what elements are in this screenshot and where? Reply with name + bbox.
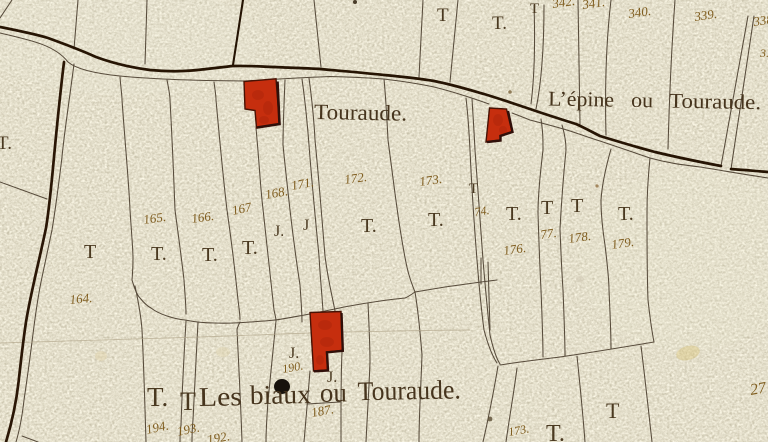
svg-text:Touraude.: Touraude. <box>358 374 462 406</box>
svg-text:T.: T. <box>618 203 634 225</box>
svg-text:T.: T. <box>546 421 565 442</box>
svg-text:J.: J. <box>327 369 337 386</box>
svg-text:166.: 166. <box>190 208 215 226</box>
svg-text:J.: J. <box>274 223 284 240</box>
svg-text:Touraude.: Touraude. <box>314 99 407 126</box>
svg-text:164.: 164. <box>69 290 93 307</box>
svg-text:T.: T. <box>202 244 218 266</box>
svg-text:338: 338 <box>751 11 768 29</box>
svg-text:77.: 77. <box>539 225 557 242</box>
svg-text:165.: 165. <box>142 209 167 227</box>
svg-text:Touraude.: Touraude. <box>669 89 761 115</box>
svg-text:ou: ou <box>631 88 654 112</box>
svg-text:T: T <box>84 241 96 263</box>
svg-text:T: T <box>180 387 196 416</box>
svg-text:J: J <box>303 217 309 234</box>
svg-text:T: T <box>606 398 620 423</box>
svg-text:179.: 179. <box>610 234 635 252</box>
svg-text:T: T <box>437 5 449 26</box>
svg-text:T: T <box>530 1 539 17</box>
svg-text:T.: T. <box>428 209 444 231</box>
svg-text:T.: T. <box>147 382 168 412</box>
svg-text:biaux: biaux <box>250 379 312 410</box>
svg-text:176.: 176. <box>502 240 527 258</box>
svg-text:Les: Les <box>199 381 243 412</box>
svg-text:T: T <box>541 197 553 219</box>
svg-text:T.: T. <box>361 215 377 237</box>
svg-text:T.: T. <box>242 237 258 259</box>
svg-text:T.: T. <box>492 13 507 34</box>
svg-text:T: T <box>469 181 478 197</box>
svg-text:172.: 172. <box>343 169 368 187</box>
svg-text:173.: 173. <box>418 171 443 189</box>
svg-text:T: T <box>571 195 583 217</box>
svg-text:T.: T. <box>506 203 522 225</box>
svg-text:L’épine: L’épine <box>548 86 614 111</box>
svg-text:T.: T. <box>0 133 12 154</box>
svg-text:178.: 178. <box>567 228 592 246</box>
svg-text:3.: 3. <box>759 46 768 60</box>
svg-text:T.: T. <box>151 243 167 265</box>
svg-text:74.: 74. <box>473 203 490 219</box>
